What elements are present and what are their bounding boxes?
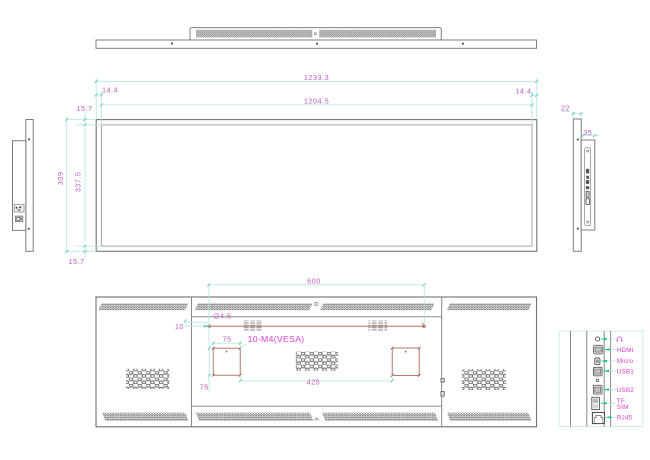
svg-text:309: 309 xyxy=(56,171,65,185)
svg-text:337.5: 337.5 xyxy=(74,172,83,193)
svg-text:USB1: USB1 xyxy=(617,368,635,375)
svg-text:RJ45: RJ45 xyxy=(617,415,633,422)
svg-text:10-M4(VESA): 10-M4(VESA) xyxy=(248,334,305,344)
svg-text:1204.5: 1204.5 xyxy=(304,97,329,106)
svg-text:∅4.5: ∅4.5 xyxy=(213,312,232,321)
svg-text:14.4: 14.4 xyxy=(102,86,118,95)
svg-text:75: 75 xyxy=(222,334,231,343)
svg-text:35: 35 xyxy=(583,128,592,137)
svg-text:14.4: 14.4 xyxy=(515,87,531,96)
svg-text:USB2: USB2 xyxy=(617,387,635,394)
svg-text:SIM: SIM xyxy=(617,404,629,411)
svg-text:10: 10 xyxy=(175,322,184,331)
svg-text:600: 600 xyxy=(307,277,321,286)
svg-text:22: 22 xyxy=(561,104,570,113)
svg-text:75: 75 xyxy=(200,383,209,392)
svg-text:Micro: Micro xyxy=(617,358,634,365)
svg-text:425: 425 xyxy=(307,377,321,386)
svg-text:15.7: 15.7 xyxy=(76,104,92,113)
svg-text:HDMI: HDMI xyxy=(617,347,634,354)
svg-text:1233.3: 1233.3 xyxy=(304,73,329,82)
svg-text:15.7: 15.7 xyxy=(68,257,84,266)
